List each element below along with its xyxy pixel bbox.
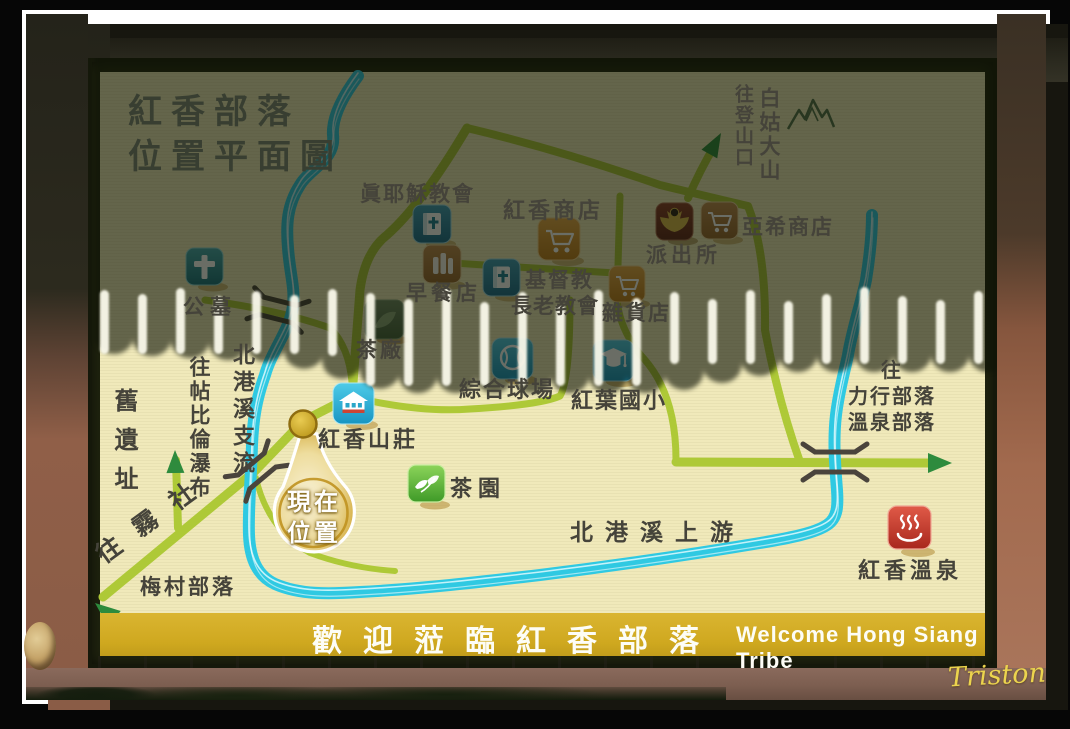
sign-wood-frame-right [997,14,1046,700]
label-baigu-mountain: 白姑大山 [754,87,784,183]
label-tea-garden: 茶園 [450,471,506,503]
label-sports-court: 綜合球場 [459,372,555,404]
photographer-watermark: Triston [947,657,1046,693]
map-title: 紅香部落 位置平面圖 [128,90,343,180]
current-location-line2: 位置 [279,519,349,550]
label-police-station: 派出所 [646,239,721,269]
label-presbyterian-line2: 長老教會 [511,290,599,320]
label-river-upstream: 北港溪上游 [570,513,745,547]
label-grocery-store: 雜貨店 [602,297,671,327]
label-tea-factory: 茶廠 [356,334,404,364]
sign-wood-frame-left [26,14,88,700]
label-river-tributary: 北港溪支流 [226,343,258,478]
label-to-lixing-line3: 溫泉部落 [836,410,948,436]
map-title-line2: 位置平面圖 [128,135,343,180]
label-hongye-elementary: 紅葉國小 [571,383,667,415]
current-location-label: 現在 位置 [279,488,349,550]
label-true-jesus-church: 眞耶穌教會 [360,178,475,208]
label-yaxi-store: 亞希商店 [742,211,834,241]
label-to-lixing: 往 力行部落 溫泉部落 [836,358,948,436]
map-title-line1: 紅香部落 [128,90,343,135]
label-to-lixing-line2: 力行部落 [836,384,948,410]
label-hongsiang-villa: 紅香山莊 [318,422,418,454]
label-to-trailhead: 往登山口 [729,84,756,168]
label-breakfast-shop: 早餐店 [406,277,481,307]
current-location-line1: 現在 [279,488,349,519]
grass [26,687,726,700]
label-cemetery: 公墓 [183,291,237,321]
label-hongsiang-hotspring: 紅香溫泉 [858,553,962,585]
wasp-nest [24,622,56,670]
label-meicun-tribe: 梅村部落 [140,571,236,601]
welcome-banner-zh: 歡迎蒞臨紅香部落 [312,616,720,660]
label-old-ruins: 舊遺址 [106,388,141,505]
welcome-banner: 歡迎蒞臨紅香部落 Welcome Hong Siang Tribe [100,613,985,656]
label-hongsiang-store: 紅香商店 [503,193,603,225]
label-to-lixing-line1: 往 [836,358,948,384]
